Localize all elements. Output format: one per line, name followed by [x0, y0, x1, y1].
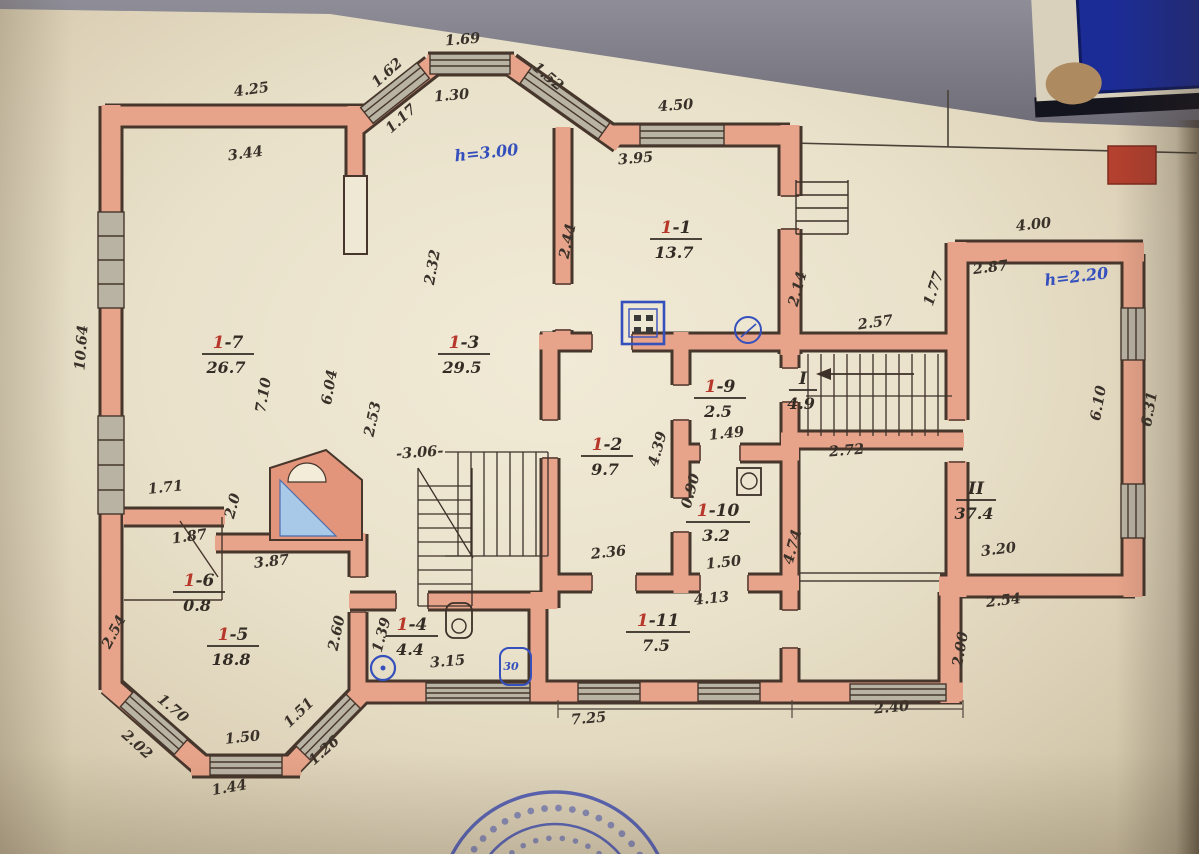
room-number-black-part: -4: [408, 615, 427, 635]
room-number-red-part: 1: [705, 377, 717, 397]
dim-label: 1.30: [433, 86, 470, 106]
dim-label: 2.32: [421, 248, 444, 287]
window-left-lower: [98, 416, 124, 514]
stamp-text-marks: [454, 805, 655, 854]
stamp-letter-mark: [573, 838, 579, 844]
stamp-letter-mark: [527, 808, 534, 815]
room-number: 1-5: [218, 625, 249, 645]
dim-label: 4.00: [1015, 214, 1052, 235]
dim-label: 3.95: [617, 149, 654, 169]
chimney-block: [1108, 146, 1156, 184]
room-label: 1-60.8: [173, 571, 225, 615]
room-number-black-part: -2: [603, 435, 622, 455]
room-label: 1-117.5: [626, 611, 690, 655]
stamp-letter-mark: [628, 840, 635, 847]
room-area: 29.5: [442, 358, 482, 377]
stamp-letter-mark: [490, 826, 497, 833]
dim-label: 1.44: [210, 776, 248, 799]
door-1-11-left: [578, 683, 640, 701]
round-stamp: [439, 792, 671, 854]
toilet-icon-1-10: [737, 468, 761, 495]
room-area: 0.8: [183, 596, 211, 615]
room-number: 1-11: [637, 611, 680, 631]
dim-label: 2.54: [984, 590, 1022, 611]
stamp-letter-mark: [585, 843, 591, 849]
room-area: 9.7: [591, 460, 619, 479]
stamp-letter-mark: [608, 822, 615, 829]
room-number-black-part: -7: [224, 333, 243, 353]
dim-label: 4.39: [645, 430, 671, 469]
fixture-labels-layer: 30: [503, 660, 519, 673]
room-number: 1-6: [184, 571, 215, 591]
blue-book: [1028, 0, 1199, 117]
room-area: 4.9: [787, 394, 815, 413]
room-number: II: [967, 479, 985, 499]
stamp-letter-mark: [583, 809, 590, 816]
dim-label: 10.64: [71, 324, 91, 370]
dim-label: 1.50: [224, 727, 261, 748]
dim-label: 7.10: [252, 376, 275, 414]
dim-label: 1.49: [708, 423, 745, 444]
stair-direction-arrow: [816, 368, 831, 380]
floorplan-drawing: 4.253.441.621.171.691.301.524.503.952.44…: [0, 0, 1199, 854]
stamp-letter-mark: [480, 835, 487, 842]
room-number-black-part: -10: [709, 501, 740, 521]
room-label: 1-518.8: [207, 625, 259, 669]
dim-label: 1.87: [171, 526, 208, 548]
room-number: 1-4: [397, 615, 428, 635]
room-area: 37.4: [955, 504, 994, 523]
walls-outline: [105, 64, 1143, 766]
walls-fill: [104, 64, 1144, 766]
dim-label: 4.13: [693, 588, 730, 609]
room-number-red-part: 1: [218, 625, 230, 645]
room-number: 1-2: [592, 435, 623, 455]
room-label: 1-103.2: [686, 501, 750, 545]
room-label: 1-29.7: [581, 435, 633, 479]
exterior-walls-fill: [104, 64, 1144, 766]
stamp-letter-mark: [514, 812, 521, 819]
chimney-niche: [344, 176, 367, 254]
window-room1-top: [640, 125, 724, 145]
room-number-red-part: 1: [592, 435, 604, 455]
dim-label: 6.10: [1087, 384, 1110, 422]
dim-label: 3.20: [980, 539, 1017, 560]
stamp-letter-mark: [471, 846, 478, 853]
window-annex-lower: [1121, 484, 1145, 538]
room-label: I4.9: [787, 369, 817, 413]
room-number: 1-9: [705, 377, 736, 397]
stamp-letter-mark: [509, 850, 515, 854]
room-number: 1-3: [449, 333, 480, 353]
window-annex-upper: [1121, 308, 1145, 360]
stamp-letter-mark: [560, 836, 566, 842]
stamp-letter-mark: [520, 843, 526, 849]
dim-label: 1.50: [705, 552, 742, 573]
room-area: 13.7: [655, 243, 694, 262]
room-number-black-part: -1: [672, 218, 691, 238]
stamp-letter-mark: [502, 818, 509, 825]
window-bay2-bottom: [210, 756, 282, 775]
dim-label: 3.87: [253, 551, 290, 572]
room-number-black-part: -9: [716, 377, 735, 397]
room-label: 1-329.5: [438, 333, 490, 377]
dim-label: 6.04: [318, 368, 341, 406]
dim-label: 2.53: [360, 400, 384, 439]
window-bay-top: [430, 54, 510, 74]
dim-label: -3.06-: [395, 442, 443, 462]
fixlabel-label: 30: [503, 660, 519, 673]
dim-label: 2.40: [872, 698, 910, 718]
room-number-red-part: 1: [449, 333, 461, 353]
room-area: 7.5: [642, 636, 670, 655]
room-number-black-part: -11: [649, 611, 680, 631]
dim-label: 1.69: [444, 30, 481, 50]
room-label: 1-113.7: [650, 218, 702, 262]
corner-stove: [270, 450, 362, 540]
window-left-upper: [98, 212, 124, 308]
room-number: I: [798, 369, 808, 389]
room-area: 2.5: [703, 402, 732, 421]
room-area: 4.4: [396, 640, 424, 659]
dim-label: 1.71: [147, 477, 184, 498]
stamp-letter-mark: [595, 815, 602, 822]
room-number-black-part: -5: [229, 625, 248, 645]
stamp-letter-mark: [533, 838, 539, 844]
dim-label: 3.15: [429, 652, 466, 672]
stamp-letter-mark: [555, 805, 562, 812]
room-label: 1-92.5: [694, 377, 746, 421]
dim-label: 2.60: [324, 614, 348, 653]
dim-label: 2.87: [971, 257, 1009, 278]
stamp-letter-mark: [569, 806, 576, 813]
dim-label: 4.50: [657, 96, 693, 115]
room-number-red-part: 1: [184, 571, 196, 591]
room-area: 3.2: [702, 526, 730, 545]
room-number: 1-1: [661, 218, 692, 238]
room-number-red-part: 1: [397, 615, 409, 635]
room-area: 26.7: [206, 358, 246, 377]
dim-label: 7.25: [570, 709, 607, 729]
room-number-black-part: I: [798, 369, 808, 389]
dim-label: 4.25: [233, 79, 270, 101]
stamp-letter-mark: [546, 835, 552, 841]
dim-label: 2.72: [827, 441, 865, 461]
dim-label: 3.44: [227, 143, 264, 165]
dim-label: 1.77: [920, 269, 947, 308]
dim-label: 2.0: [221, 491, 244, 521]
door-1-11-right: [698, 683, 760, 701]
photographed-floorplan-scene: 4.253.441.621.171.691.301.524.503.952.44…: [0, 0, 1199, 854]
room-number-red-part: 1: [697, 501, 709, 521]
room-number-black-part: II: [967, 479, 985, 499]
room-number-red-part: 1: [637, 611, 649, 631]
terrace-lines: [793, 573, 949, 581]
porch-steps: [796, 180, 848, 234]
room-number: 1-7: [213, 333, 244, 353]
toilet-icon-1-4: [371, 656, 395, 680]
exterior-walls-outline: [105, 64, 1143, 766]
room-number: 1-10: [697, 501, 740, 521]
room-label: 1-726.7: [202, 333, 254, 377]
room-number-red-part: 1: [213, 333, 225, 353]
dim-label: 1.39: [369, 616, 395, 655]
stamp-letter-mark: [541, 805, 548, 812]
room-number-red-part: 1: [661, 218, 673, 238]
dim-label: 2.36: [589, 542, 627, 563]
page-edge-shadow: [1176, 120, 1199, 854]
dim-label: 2.57: [856, 312, 894, 334]
room-number-black-part: -6: [195, 571, 214, 591]
hnote-label: h=2.20: [1043, 263, 1109, 290]
room-area: 18.8: [212, 650, 251, 669]
hnote-label: h=3.00: [454, 140, 520, 166]
main-staircase: [418, 452, 548, 606]
fixtures: [371, 302, 761, 685]
stamp-letter-mark: [619, 830, 626, 837]
room-number-black-part: -3: [460, 333, 479, 353]
staircase-I: [806, 354, 952, 436]
